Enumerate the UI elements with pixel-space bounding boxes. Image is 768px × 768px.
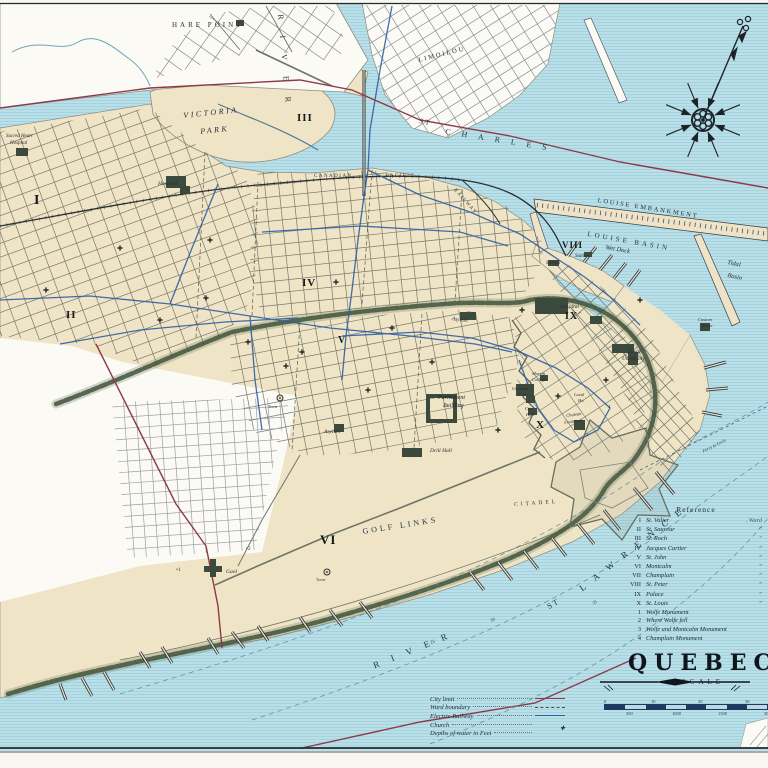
- reference-ward-list: ISt. Valier. WardIISt. Sauveur”IIISt. Ro…: [624, 517, 768, 609]
- scale-segment: [646, 705, 666, 709]
- map-label: Parliament: [438, 395, 465, 401]
- ward-numeral: IX: [565, 312, 578, 322]
- ward-numeral: VI: [320, 533, 336, 546]
- map-label: Station: [575, 254, 589, 259]
- ward-numeral: I: [34, 194, 40, 208]
- reference-ward-row: VIIChamplain”: [624, 572, 768, 581]
- reference-ward-row: ISt. Valier. Ward: [624, 517, 768, 526]
- legend-leader: [473, 706, 532, 707]
- map-label: Con.: [519, 393, 528, 398]
- reference-ward-row: VSt. John”: [624, 554, 768, 563]
- map-label: PACIFIC: [386, 174, 415, 179]
- reference-ward-row: IIISt. Roch”: [624, 535, 768, 544]
- scale-bar: 0102030 500100015002000: [604, 699, 768, 715]
- scale-top-ticks: 0102030: [604, 699, 768, 704]
- scale-tick: 0: [604, 699, 606, 704]
- reference-ward-row: IVJacques Cartier”: [624, 545, 768, 554]
- legend-swatch-ward-boundary: [535, 707, 565, 713]
- map-label: House: [701, 324, 713, 329]
- map-label: Station: [546, 261, 560, 266]
- legend-label: Depths of water in Feet: [430, 730, 491, 737]
- scale-segment: [747, 705, 767, 709]
- scale-segment: [686, 705, 706, 709]
- reference-ward-row: IXPalace”: [624, 591, 768, 600]
- legend-row-church: Church✚: [430, 721, 565, 730]
- map-label: Hospital: [158, 182, 177, 188]
- legend-label: City limit: [430, 696, 454, 703]
- map-label: University: [622, 357, 645, 363]
- legend-row-city-limit: City limit: [430, 695, 565, 704]
- map-label: Gaol: [226, 570, 237, 576]
- map-label: Building: [443, 403, 464, 409]
- scale-segment: [727, 705, 747, 709]
- reference-ward-row: VIIISt. Peter”: [624, 581, 768, 590]
- legend-row-none: Depths of water in Feet: [430, 729, 565, 738]
- legend-row-electric-railway: Electric Railway: [430, 712, 565, 721]
- scale-segment: [605, 705, 625, 709]
- title-block: QUEBEC SCALE: [628, 650, 768, 686]
- scale-segment: [666, 705, 686, 709]
- scale-label: SCALE: [628, 678, 768, 686]
- ward-numeral: III: [297, 113, 313, 124]
- scale-tick: 1000: [672, 711, 681, 716]
- legend-swatch-city-limit: [535, 698, 565, 704]
- map-label: Hospital: [560, 305, 579, 311]
- reference-panel: Reference ISt. Valier. WardIISt. Sauveur…: [624, 505, 768, 643]
- map-label: Custom: [698, 318, 712, 323]
- legend-row-ward-boundary: Ward boundary: [430, 704, 565, 713]
- reference-monument-row: 4Champlain Monument: [624, 635, 768, 644]
- map-title: QUEBEC: [628, 650, 768, 676]
- ward-numeral: IV: [302, 278, 316, 289]
- legend-leader: [477, 715, 532, 716]
- legend-swatch-electric-railway: [535, 715, 565, 721]
- legend-swatch-church: ✚: [535, 725, 565, 730]
- map-label: Ho.: [578, 399, 585, 404]
- map-label: Hospital: [10, 141, 27, 146]
- map-label: City: [525, 407, 533, 412]
- map-label: Laval: [628, 350, 641, 356]
- map-label: 3: [586, 433, 588, 438]
- map-label: Ursuline: [512, 387, 528, 392]
- scale-tick: 2000: [764, 711, 768, 716]
- map-label: Hall: [526, 413, 534, 418]
- map-label: Morrin: [532, 372, 545, 377]
- map-label: Sacred Heart: [6, 134, 33, 139]
- map-label: 4: [608, 405, 610, 410]
- map-legend: City limitWard boundaryElectric RailwayC…: [430, 695, 565, 738]
- map-label: Laval: [574, 393, 584, 398]
- scale-segment: [706, 705, 726, 709]
- map-label: Tower: [316, 579, 326, 583]
- legend-label: Church: [430, 722, 449, 729]
- legend-label: Ward boundary: [430, 704, 470, 711]
- quebec-map: HARE POINTVICTORIAPARKRIVERSTCHARLESLIMO…: [0, 0, 768, 768]
- map-label: HARE POINT: [172, 22, 243, 29]
- scale-tick: 500: [626, 711, 633, 716]
- map-label: CANADIAN: [314, 174, 353, 179]
- scale-tick: 10: [651, 699, 656, 704]
- reference-ward-row: VIMontcalm”: [624, 563, 768, 572]
- map-label: Tower: [268, 406, 278, 410]
- legend-leader: [494, 732, 532, 733]
- scale-tick: 1500: [718, 711, 727, 716]
- reference-ward-row: XSt. Louis”: [624, 600, 768, 609]
- map-label: College: [532, 378, 546, 383]
- map-label: Drill Hall: [430, 449, 452, 455]
- ward-numeral: II: [66, 310, 77, 321]
- reference-monument-row: 1Wolfe Monument: [624, 609, 768, 618]
- scale-bottom-ticks: 500100015002000: [604, 710, 768, 716]
- reference-monument-list: 1Wolfe Monument2Where Wolfe fell3Wolfe a…: [624, 609, 768, 643]
- legend-leader: [452, 724, 532, 725]
- map-label: •1: [176, 568, 181, 574]
- map-label: Asylum: [324, 430, 340, 436]
- legend-label: Electric Railway: [430, 713, 474, 720]
- ward-numeral: X: [536, 420, 545, 431]
- ward-numeral: V: [338, 336, 346, 346]
- legend-swatch-none: [535, 733, 565, 738]
- reference-monument-row: 3Wolfe and Montcalm Monument: [624, 626, 768, 635]
- reference-title: Reference: [624, 505, 768, 514]
- scale-tick: 20: [698, 699, 703, 704]
- scale-segment: [625, 705, 645, 709]
- reference-ward-row: IISt. Sauveur”: [624, 526, 768, 535]
- legend-leader: [457, 698, 532, 699]
- scale-tick: 30: [745, 699, 750, 704]
- reference-monument-row: 2Where Wolfe fell: [624, 617, 768, 626]
- ward-numeral: VIII: [562, 241, 583, 250]
- map-label: •2: [246, 547, 251, 553]
